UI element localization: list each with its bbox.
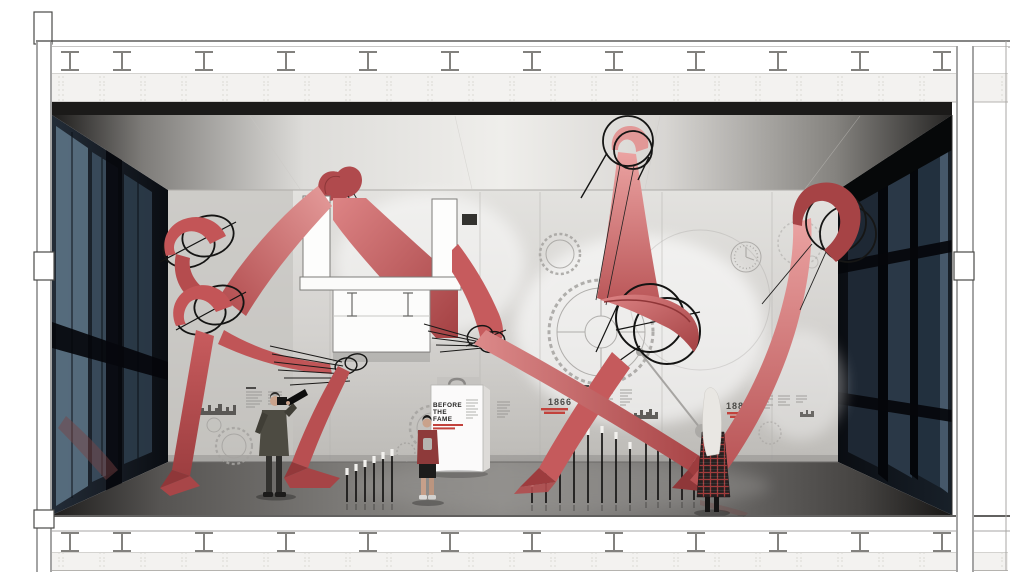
scene-canvas: 1866 1880	[0, 0, 1024, 576]
wall-tie-block	[34, 510, 54, 528]
shorts	[419, 462, 436, 478]
left-wall-section	[34, 42, 54, 572]
hanging-display-box	[333, 290, 430, 352]
bag-micro-text	[466, 400, 478, 418]
roof-slab	[52, 74, 1008, 102]
small-backpack	[423, 438, 432, 450]
bag-title-line-2: THE	[433, 409, 447, 416]
ceiling-soffit-shadow	[52, 102, 952, 115]
interior-ceiling	[52, 115, 952, 190]
bag-title-line-3: FAME	[433, 416, 453, 423]
timeline-year-1866: 1866	[548, 397, 572, 407]
bag-side-face	[483, 385, 490, 472]
timeline-caption-line	[544, 412, 565, 414]
visitor-head	[423, 419, 432, 428]
bottom-structure	[0, 516, 1024, 576]
interior-room: 1866 1880	[52, 115, 952, 517]
timeline-caption-line	[541, 408, 568, 410]
wall-tie-block	[34, 252, 54, 280]
long-white-hair	[703, 388, 722, 456]
ceiling-projector	[462, 214, 477, 225]
micro-text-header	[246, 387, 256, 389]
bag-shadow	[428, 470, 488, 478]
bag-caption-line	[433, 424, 463, 426]
bag-title-line-1: BEFORE	[433, 402, 462, 409]
mezzanine-slab	[300, 277, 461, 290]
camera-body	[277, 397, 287, 405]
parapet-section	[34, 12, 52, 44]
floor-slab	[52, 553, 1008, 570]
architectural-section-rendering: 1866 1880	[0, 0, 1024, 576]
bag-caption-line	[433, 427, 455, 429]
right-wall-section	[952, 41, 1006, 572]
top-structure	[0, 0, 1024, 115]
wall-tie-block	[954, 252, 974, 280]
